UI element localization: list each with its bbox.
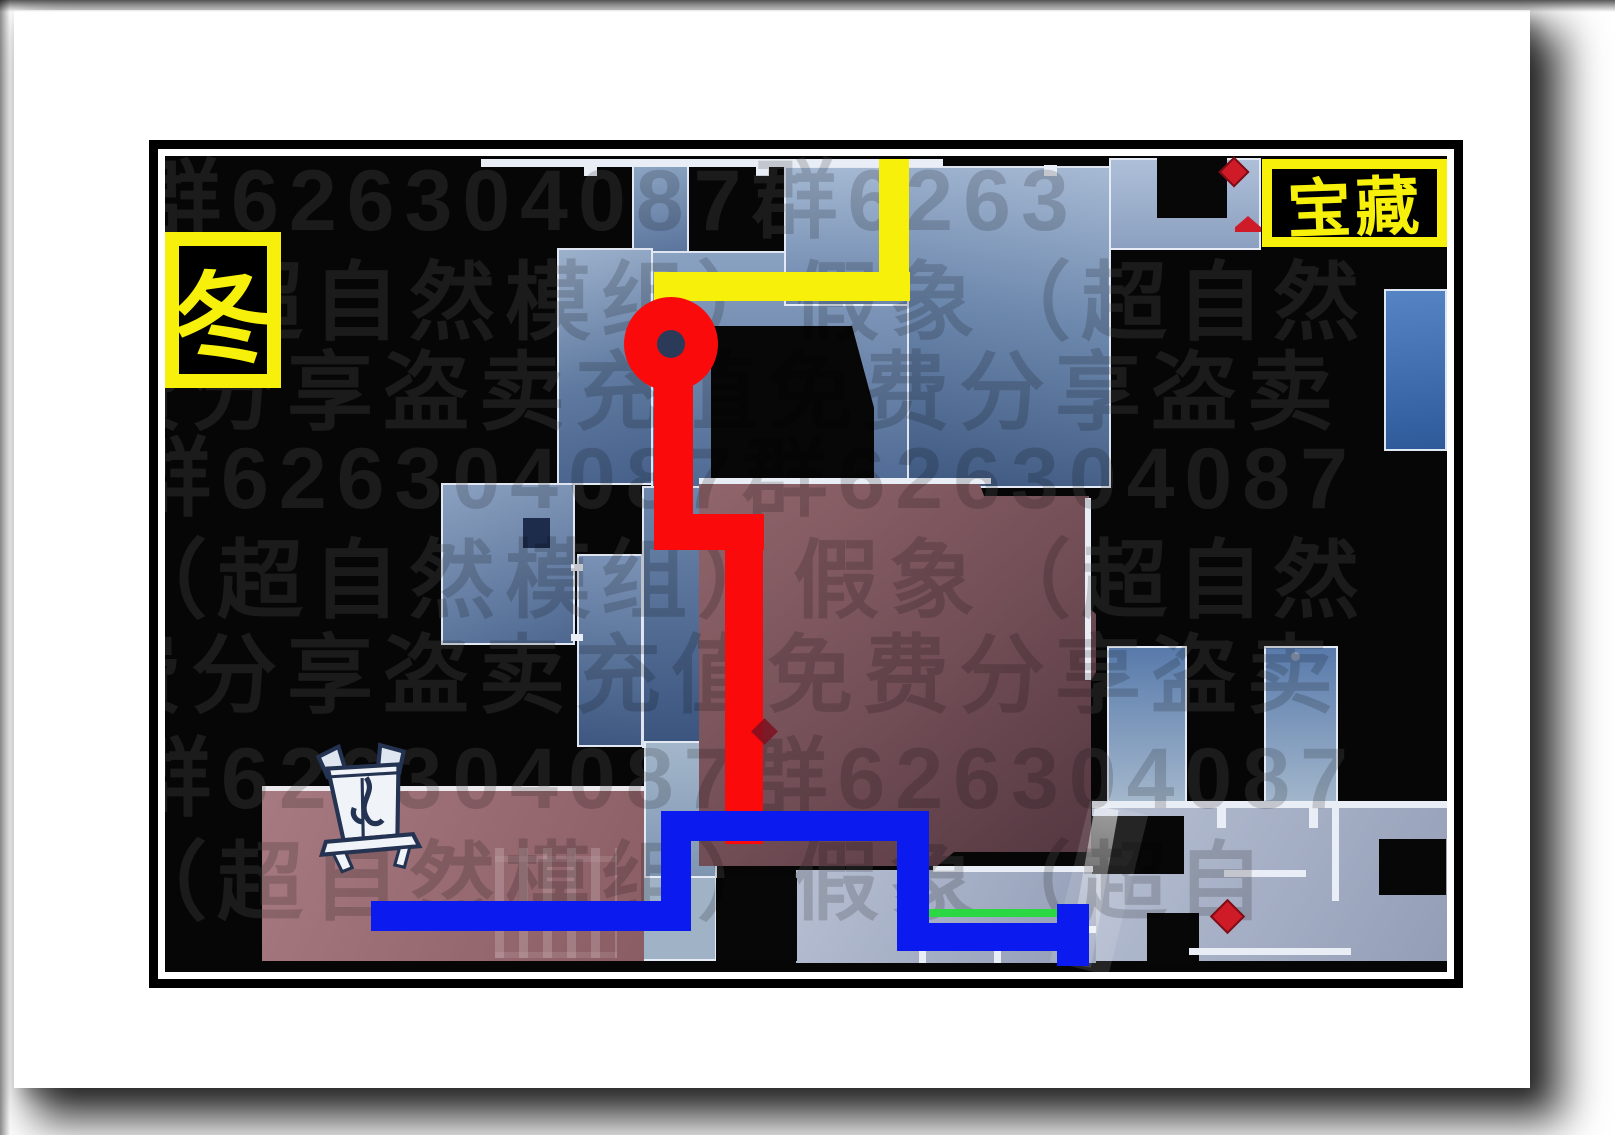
closet-notch (1157, 158, 1227, 218)
route-blue-segment (661, 811, 929, 841)
watermark-row-overlay: 群626304087群626304087 (165, 436, 1358, 522)
watermark-row-overlay: 群626304087群6263 (165, 158, 1079, 244)
route-start-hole (657, 330, 685, 358)
route-blue-segment (371, 901, 691, 931)
game-map: 群626304087群6263 象（超自然模组）假象（超自然 费分享盗卖充值免费… (165, 156, 1447, 972)
route-green-segment (929, 909, 1057, 917)
watermark-row-overlay: 费分享盗卖充值免费分享盗卖 (165, 350, 1343, 436)
route-blue-segment (1057, 904, 1089, 966)
watermark-row-overlay: 象（超自然模组）假象（超自然 (165, 538, 1369, 624)
room-right-blue (1384, 289, 1447, 451)
incense-burner-icon (309, 738, 424, 883)
season-label: 冬 (165, 228, 285, 392)
map-frame: 群626304087群6263 象（超自然模组）假象（超自然 费分享盗卖充值免费… (149, 140, 1463, 988)
screenshot-stage: 群626304087群6263 象（超自然模组）假象（超自然 费分享盗卖充值免费… (0, 0, 1615, 1135)
treasure-label-box: 宝藏 (1262, 159, 1447, 247)
left-edge-shadow (0, 0, 10, 1135)
season-label-box: 冬 (165, 232, 281, 388)
route-red-segment (725, 514, 763, 844)
route-yellow-horizontal (654, 272, 910, 301)
treasure-label: 宝藏 (1285, 156, 1424, 251)
floor-cutout (1379, 839, 1446, 895)
wall-line (1189, 948, 1351, 955)
top-edge-shadow (0, 0, 1615, 12)
